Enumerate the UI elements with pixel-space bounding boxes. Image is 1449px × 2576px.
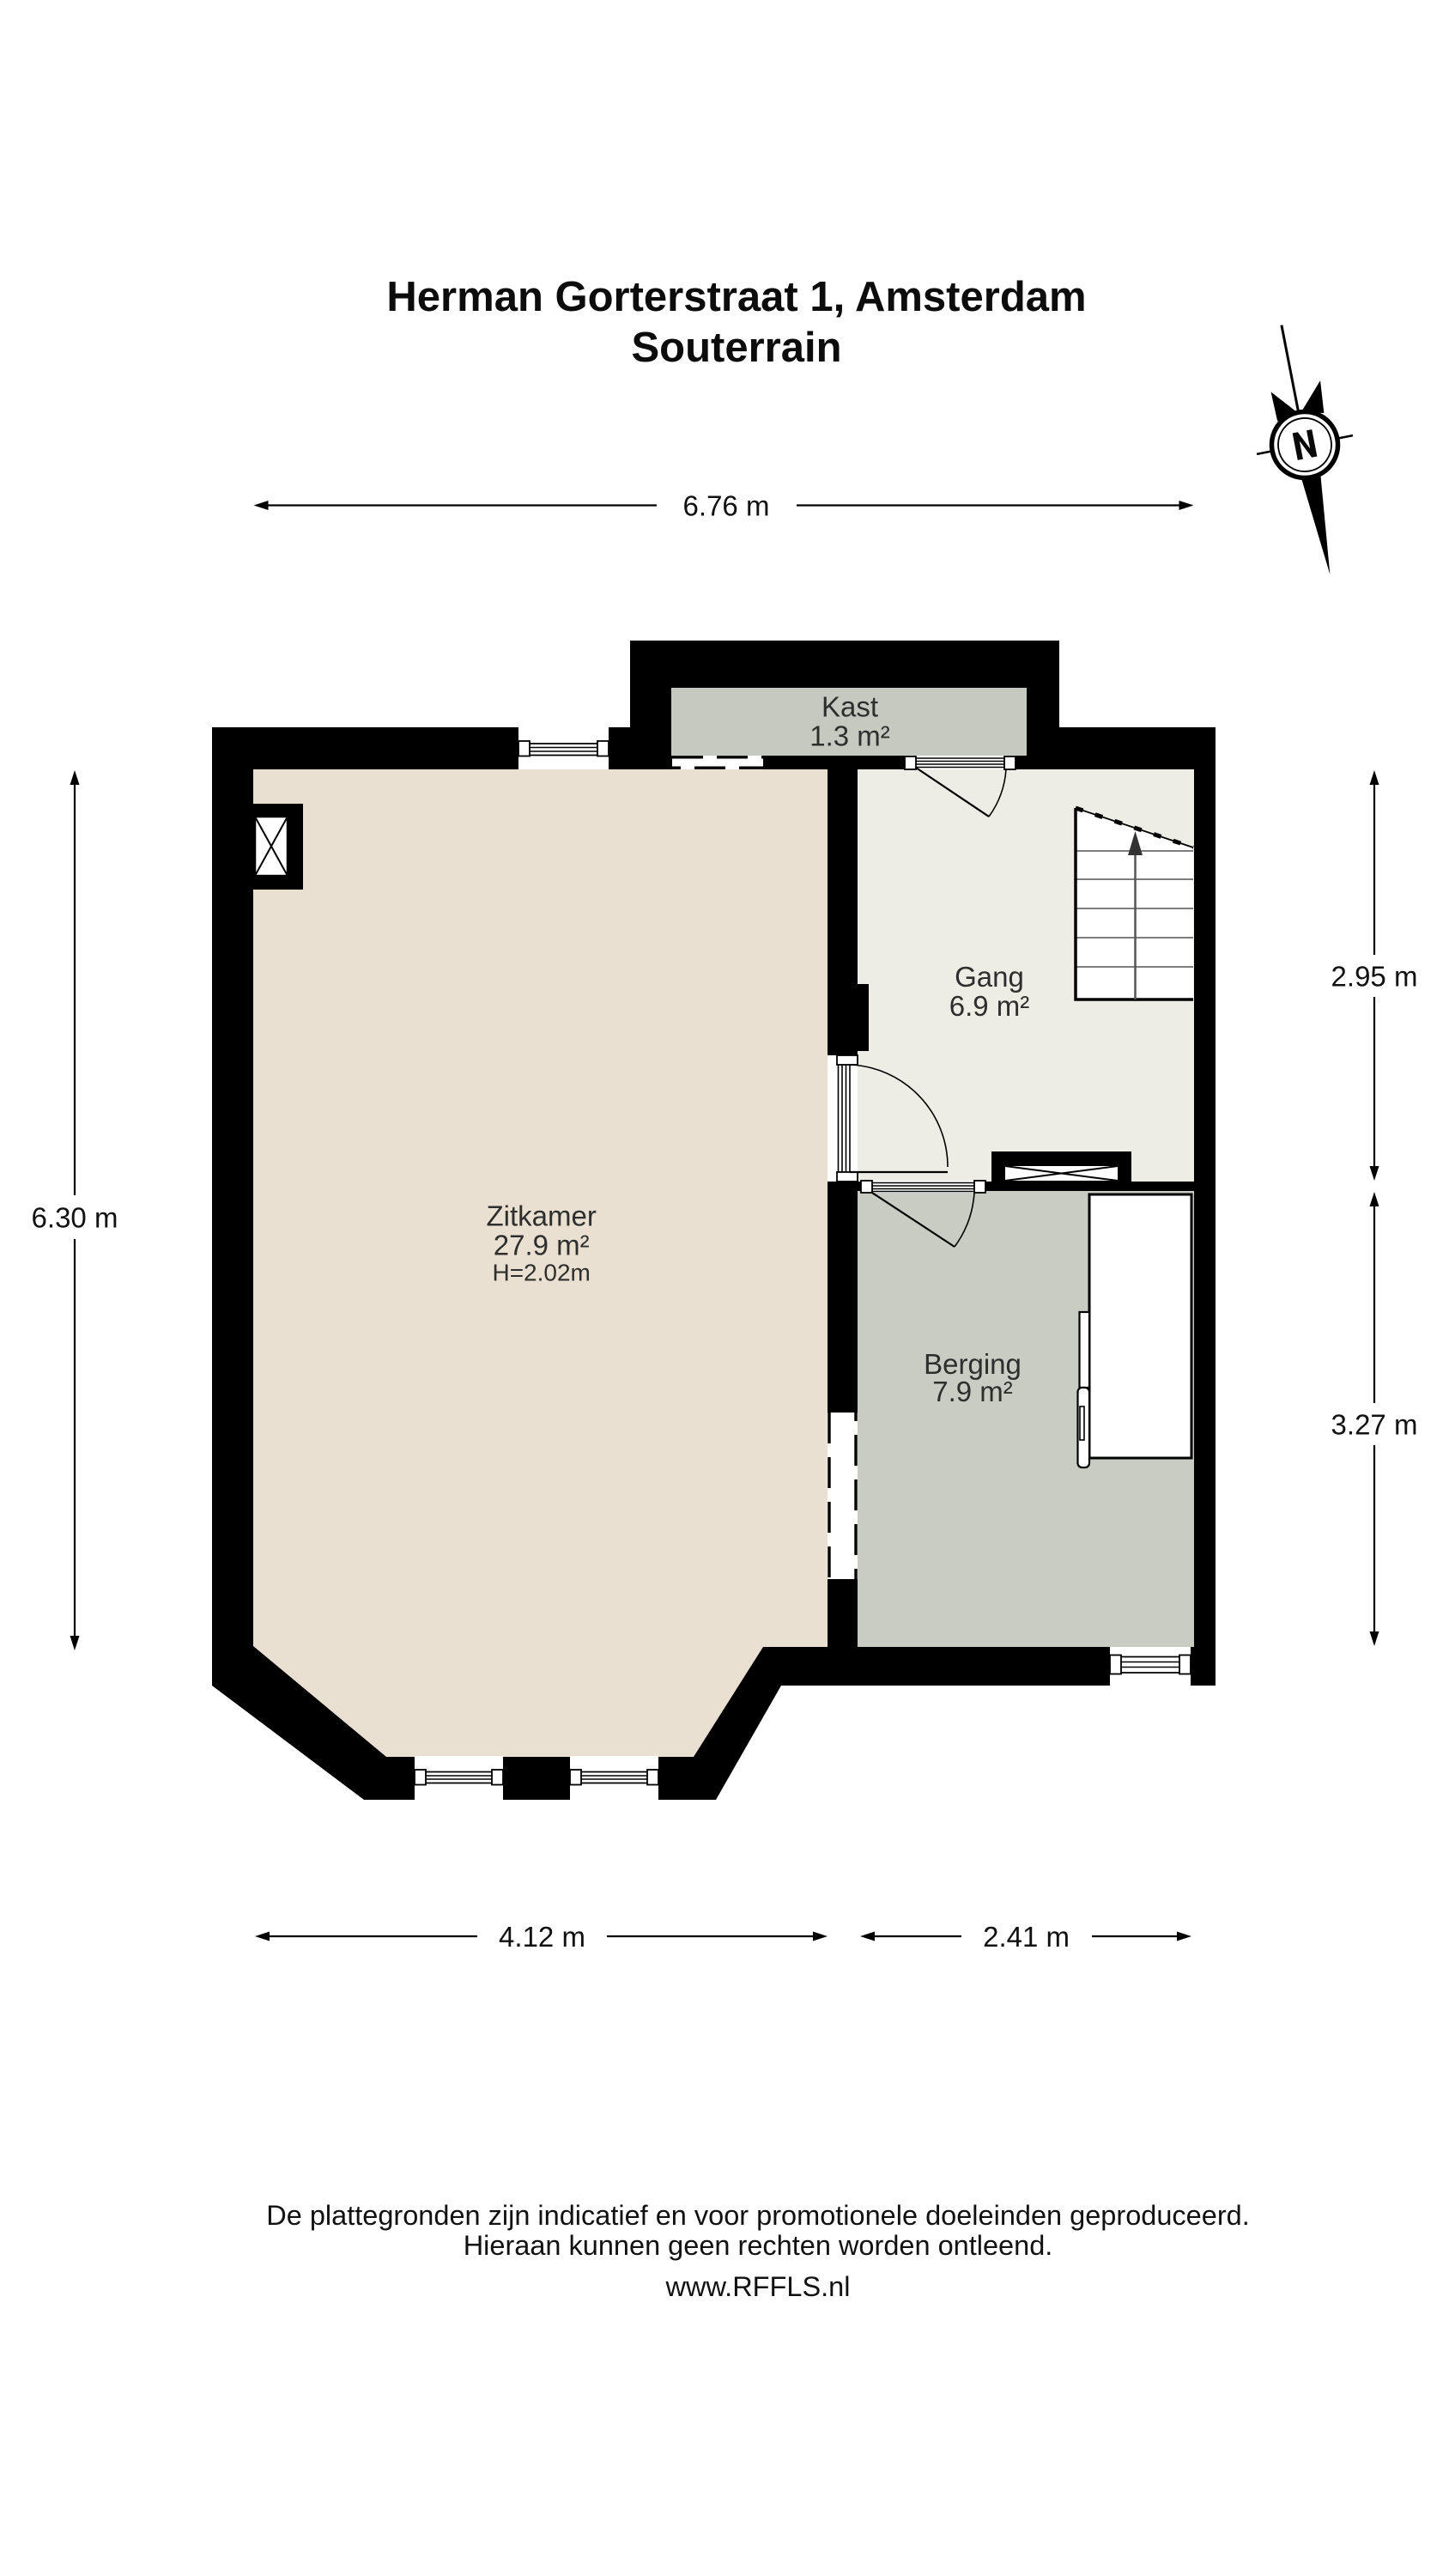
svg-text:3.27 m: 3.27 m (1331, 1409, 1418, 1441)
svg-text:Herman Gorterstraat 1, Amsterd: Herman Gorterstraat 1, Amsterdam (386, 274, 1086, 320)
svg-text:H=2.02m: H=2.02m (492, 1259, 590, 1285)
svg-text:Zitkamer: Zitkamer (487, 1200, 597, 1232)
svg-text:Kast: Kast (822, 691, 878, 723)
svg-text:www.RFFLS.nl: www.RFFLS.nl (665, 2271, 851, 2302)
svg-text:4.12 m: 4.12 m (499, 1921, 585, 1953)
svg-text:De plattegronden zijn indicati: De plattegronden zijn indicatief en voor… (266, 2200, 1250, 2231)
svg-text:6.9 m²: 6.9 m² (949, 990, 1030, 1022)
svg-text:Hieraan kunnen geen rechten wo: Hieraan kunnen geen rechten worden ontle… (464, 2230, 1053, 2261)
svg-text:27.9 m²: 27.9 m² (494, 1230, 590, 1261)
svg-text:6.30 m: 6.30 m (32, 1202, 118, 1234)
svg-text:6.76 m: 6.76 m (683, 490, 770, 522)
svg-text:2.95 m: 2.95 m (1331, 961, 1418, 993)
svg-text:Souterrain: Souterrain (631, 325, 841, 371)
svg-text:1.3 m²: 1.3 m² (809, 720, 890, 752)
svg-text:Gang: Gang (955, 961, 1024, 993)
svg-text:7.9 m²: 7.9 m² (932, 1376, 1013, 1407)
svg-text:2.41 m: 2.41 m (983, 1921, 1070, 1953)
